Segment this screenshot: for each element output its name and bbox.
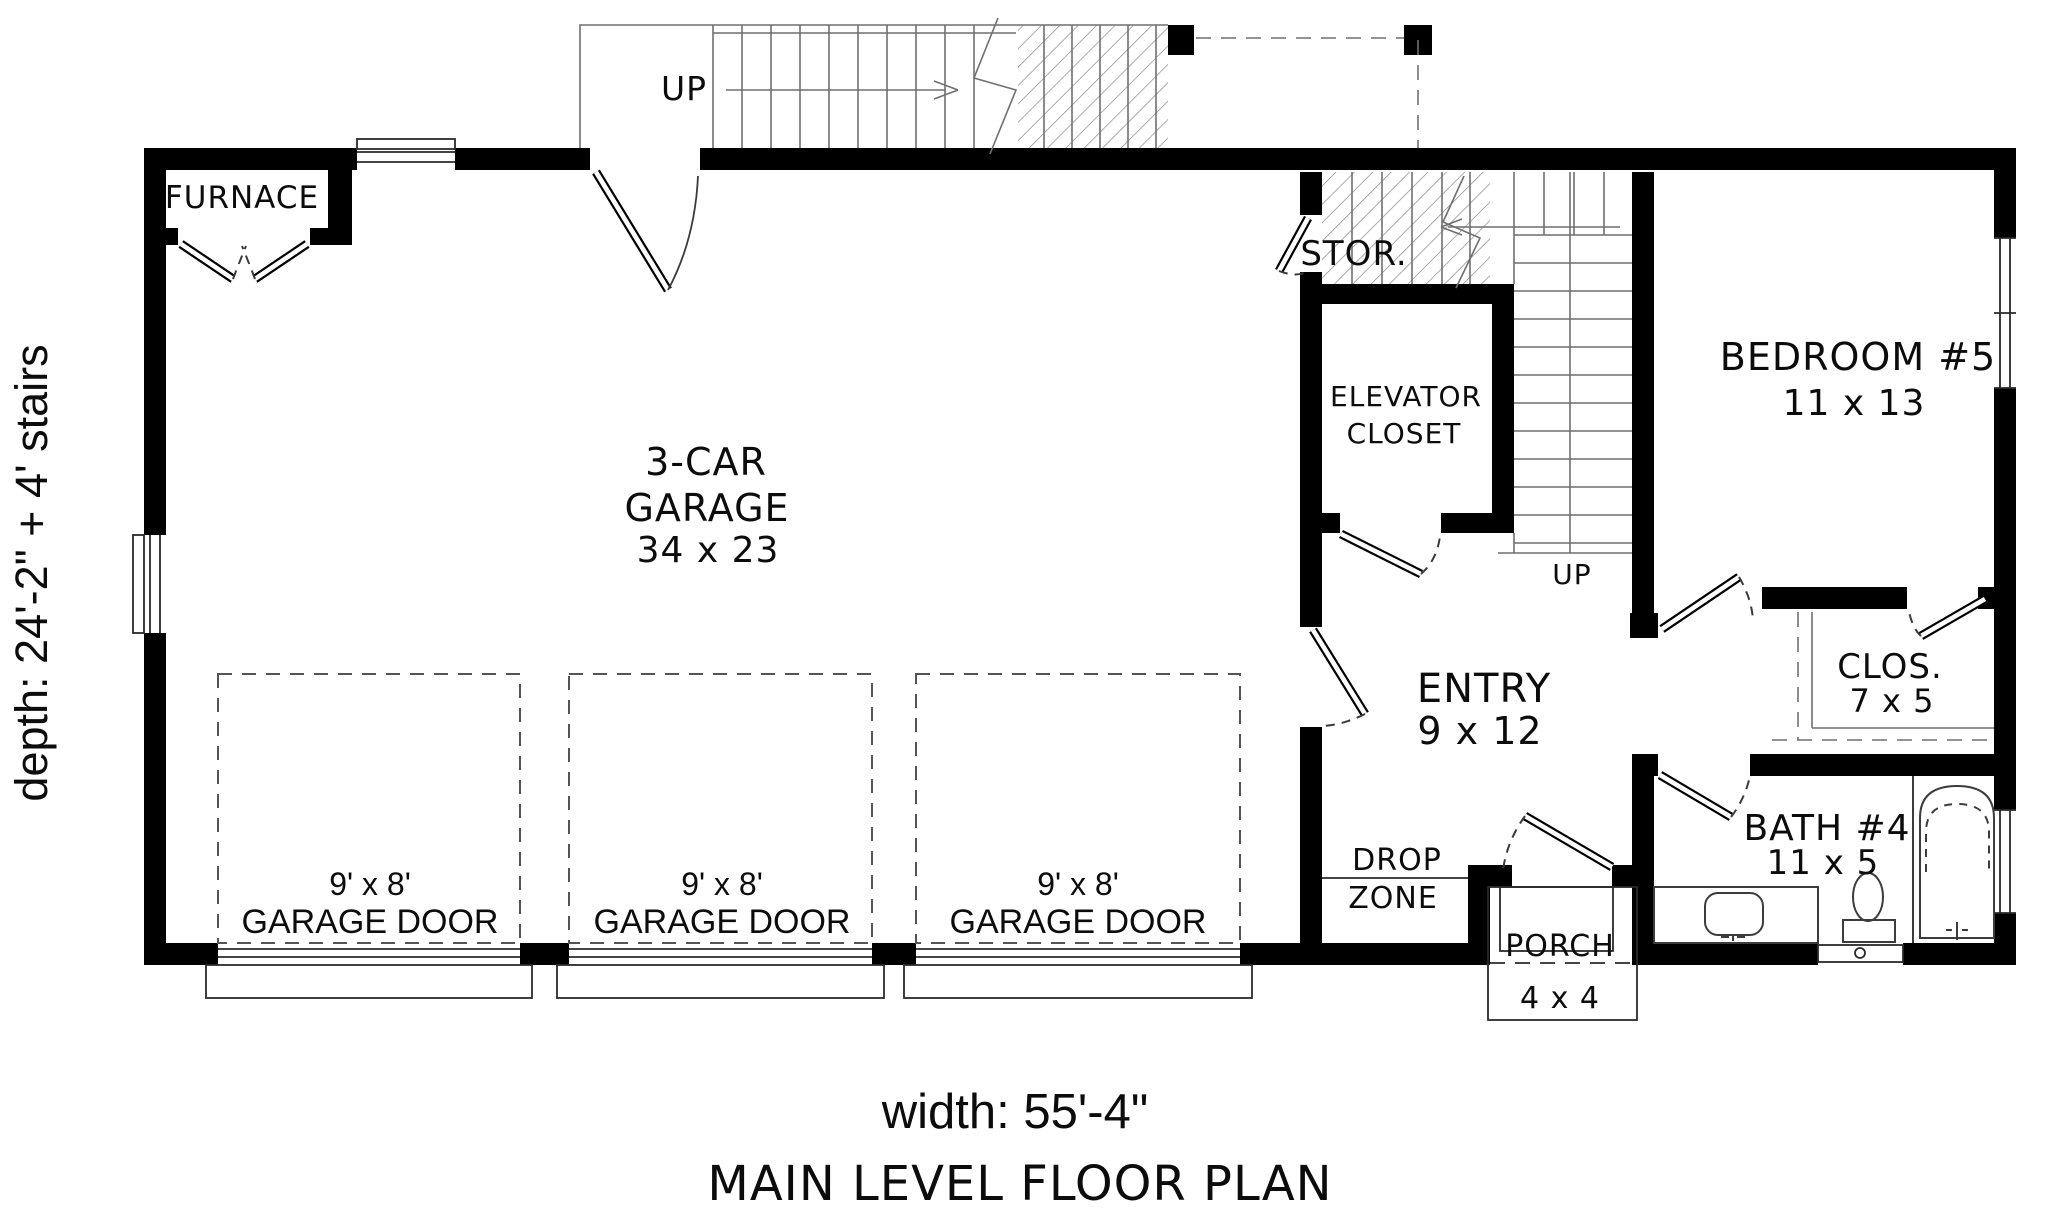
garage-top-window-icon xyxy=(357,139,455,162)
garage-door-bays xyxy=(206,674,1252,998)
stair-break-line xyxy=(974,18,1016,154)
entry-to-garage-door-icon xyxy=(1313,630,1365,726)
garage-apron xyxy=(206,965,532,998)
entry-label: ENTRY xyxy=(1417,666,1551,712)
depth-dimension-label: depth: 24'-2" + 4' stairs xyxy=(6,344,57,801)
interior-walls xyxy=(152,170,2016,965)
exterior-walls xyxy=(144,148,2016,965)
garage-to-stairs-door-icon xyxy=(596,172,698,290)
elevator-closet-label-line1: ELEVATOR xyxy=(1330,380,1482,413)
closet-label: CLOS. xyxy=(1837,647,1943,687)
garage-door-3-label: GARAGE DOOR xyxy=(950,903,1207,941)
drop-zone-label-line2: ZONE xyxy=(1348,881,1438,916)
bedroom-door-icon xyxy=(1662,577,1753,629)
entry-stairs-up-label: UP xyxy=(1552,558,1591,591)
garage-apron xyxy=(557,965,884,998)
doors xyxy=(181,172,1985,870)
porch-label: PORCH xyxy=(1505,929,1615,964)
elevator-closet-label-line2: CLOSET xyxy=(1347,417,1462,450)
garage-door-2-size: 9' x 8' xyxy=(681,866,763,902)
plan-title: MAIN LEVEL FLOOR PLAN xyxy=(707,1156,1332,1212)
bedroom-dims-label: 11 x 13 xyxy=(1783,383,1926,424)
porch-dims-label: 4 x 4 xyxy=(1520,981,1600,1016)
upper-stairs xyxy=(580,18,1432,154)
closet-door-icon xyxy=(1909,599,1985,636)
porch-entry-door-icon xyxy=(1503,816,1612,870)
garage-apron xyxy=(904,965,1252,998)
bath-door-icon xyxy=(1660,775,1749,817)
vanity-sink-icon xyxy=(1654,887,1818,943)
garage-door-3-size: 9' x 8' xyxy=(1037,866,1119,902)
bath-side-window-icon xyxy=(1994,810,2016,913)
garage-door-1-label: GARAGE DOOR xyxy=(242,903,499,941)
width-dimension-label: width: 55'-4" xyxy=(881,1085,1148,1139)
furnace-label: FURNACE xyxy=(165,180,319,216)
drop-zone-label-line1: DROP xyxy=(1352,843,1442,878)
garage-dims-label: 34 x 23 xyxy=(637,530,780,571)
garage-label-line2: GARAGE xyxy=(624,486,789,530)
garage-door-2-label: GARAGE DOOR xyxy=(594,903,851,941)
floor-plan-drawing: FURNACE UP 3-CAR GARAGE 34 x 23 STOR. EL… xyxy=(0,0,2048,1231)
upper-stairs-up-label: UP xyxy=(661,69,707,108)
bath-dims-label: 11 x 5 xyxy=(1767,843,1880,883)
bedroom-window-icon xyxy=(1994,238,2016,388)
garage-door-1-size: 9' x 8' xyxy=(329,866,411,902)
bath-bottom-window-icon xyxy=(1818,945,1903,962)
garage-label-line1: 3-CAR xyxy=(645,440,767,484)
column-post xyxy=(1168,25,1194,55)
furnace-double-doors-icon xyxy=(181,244,307,279)
elevator-closet-door-icon xyxy=(1341,534,1440,574)
floor-plan-page: FURNACE UP 3-CAR GARAGE 34 x 23 STOR. EL… xyxy=(0,0,2048,1231)
bathtub-icon xyxy=(1913,776,1994,943)
stair-hatch-region xyxy=(1018,25,1168,148)
toilet-icon xyxy=(1843,873,1895,942)
storage-label: STOR. xyxy=(1300,234,1407,274)
garage-left-window-icon xyxy=(133,535,160,633)
bedroom-label: BEDROOM #5 xyxy=(1720,335,1996,379)
closet-dims-label: 7 x 5 xyxy=(1850,682,1935,720)
windows xyxy=(133,139,2016,962)
entry-dims-label: 9 x 12 xyxy=(1417,709,1542,753)
